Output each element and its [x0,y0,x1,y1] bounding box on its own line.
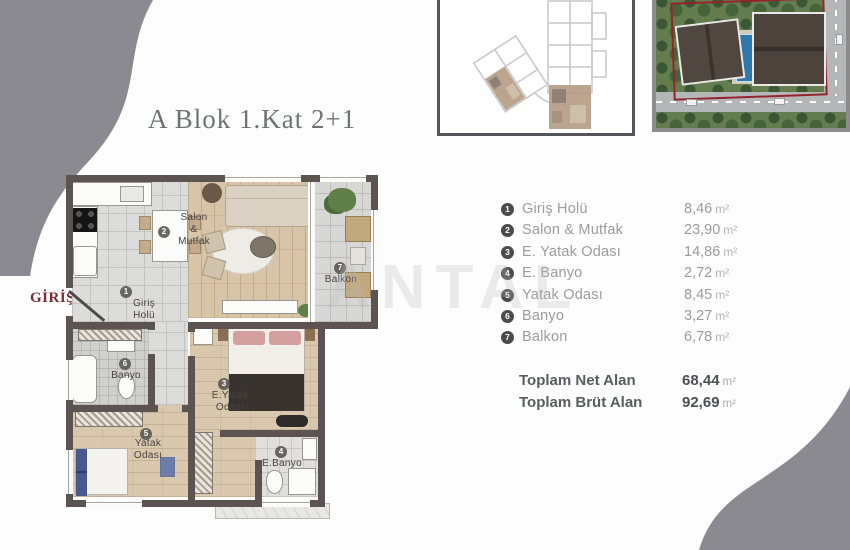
wall [148,322,155,330]
door-mat [193,327,213,345]
bed-pillows-blue [76,449,87,496]
list-item: 1 Giriş Holü 8,46m² [501,200,761,221]
window [66,360,73,400]
room-area: 23,90m² [684,222,737,238]
window [86,500,142,507]
nightstand [218,328,228,341]
totals: Toplam Net Alan 68,44m² Toplam Brüt Alan… [501,371,771,414]
list-number-badge: 1 [501,203,514,216]
building-left-roof [675,18,746,85]
tv-unit [222,300,298,314]
room-area: 3,27m² [684,308,729,324]
list-number-badge: 2 [501,224,514,237]
side-table [202,183,222,203]
ensuite-toilet [266,470,283,494]
wall [318,322,325,507]
wall [72,405,158,412]
wall [188,322,318,329]
stove [73,208,97,232]
coffee-table [250,236,276,258]
sofa [225,185,310,227]
ensuite-sink [302,438,317,460]
room-number-badge: 6 [119,358,131,370]
room-label-salon: Salon & Mutfak [166,212,222,248]
list-number-badge: 7 [501,331,514,344]
room-label-eyatak: E.Yatak Odası [198,390,262,414]
room-label-banyo: Banyo [102,370,150,382]
room-area: 2,72m² [684,265,729,281]
page-title: A Blok 1.Kat 2+1 [148,104,356,135]
total-gross-row: Toplam Brüt Alan 92,69m² [501,393,771,415]
room-area: 8,46m² [684,201,729,217]
watermark: ANTAL [326,252,581,323]
room-label-yatak: Yatak Odası [120,438,176,462]
total-net-value: 68,44m² [682,372,736,389]
bathtub [72,355,97,403]
window [225,175,301,182]
nightstand [305,328,315,341]
aerial-view-thumbnail [652,0,850,132]
trees-bottom [656,112,846,128]
window [262,500,310,507]
room-area: 6,78m² [684,329,729,345]
wall [66,175,73,288]
page: A Blok 1.Kat 2+1 GİRİŞ➤ [0,0,850,550]
room-number-badge: 3 [218,378,230,390]
wall [72,322,148,329]
fridge [73,246,97,276]
window [66,450,73,494]
total-gross-label: Toplam Brüt Alan [519,394,642,411]
wardrobe-tall [193,432,213,494]
wall [188,322,195,332]
wall [220,430,318,437]
shower [288,468,316,495]
dining-chair [139,240,151,254]
bed-pillow-pink [269,331,301,345]
balcony-sliding-door [308,182,315,322]
balcony-plant-icon [328,188,356,212]
key-plan-drawing [440,0,632,133]
total-net-row: Toplam Net Alan 68,44m² [501,371,771,393]
car-icon [836,34,843,45]
list-item: 2 Salon & Mutfak 23,90m² [501,221,761,242]
total-gross-value: 92,69m² [682,394,736,411]
radiator [78,329,142,341]
window [320,175,366,182]
balcony-chair [345,216,371,242]
car-icon [686,99,697,106]
building-right-roof [752,12,826,86]
room-area: 14,86m² [684,244,737,260]
room-name: Giriş Holü [522,201,588,217]
wall [188,356,195,500]
list-item: 7 Balkon 6,78m² [501,328,761,349]
dining-chair [139,216,151,230]
car-icon [774,98,785,105]
floor-plan: 1 Giriş Holü 2 Salon & Mutfak 6 Banyo 5 … [62,170,384,526]
wall [312,322,378,329]
room-area: 8,45m² [684,287,729,303]
room-name: Salon & Mutfak [522,222,623,238]
kitchen-sink [120,186,144,202]
key-plan-thumbnail [437,0,635,136]
bed-pillow-pink [233,331,265,345]
total-net-label: Toplam Net Alan [519,372,636,389]
room-label-ebanyo: E.Banyo [256,458,308,470]
room-name: Balkon [522,329,568,345]
road-markings [656,101,846,103]
floor-mat-dark [276,415,308,427]
room-label-giris: Giriş Holü [118,282,170,322]
road-markings-right [835,0,837,96]
room-number-badge: 4 [275,446,287,458]
